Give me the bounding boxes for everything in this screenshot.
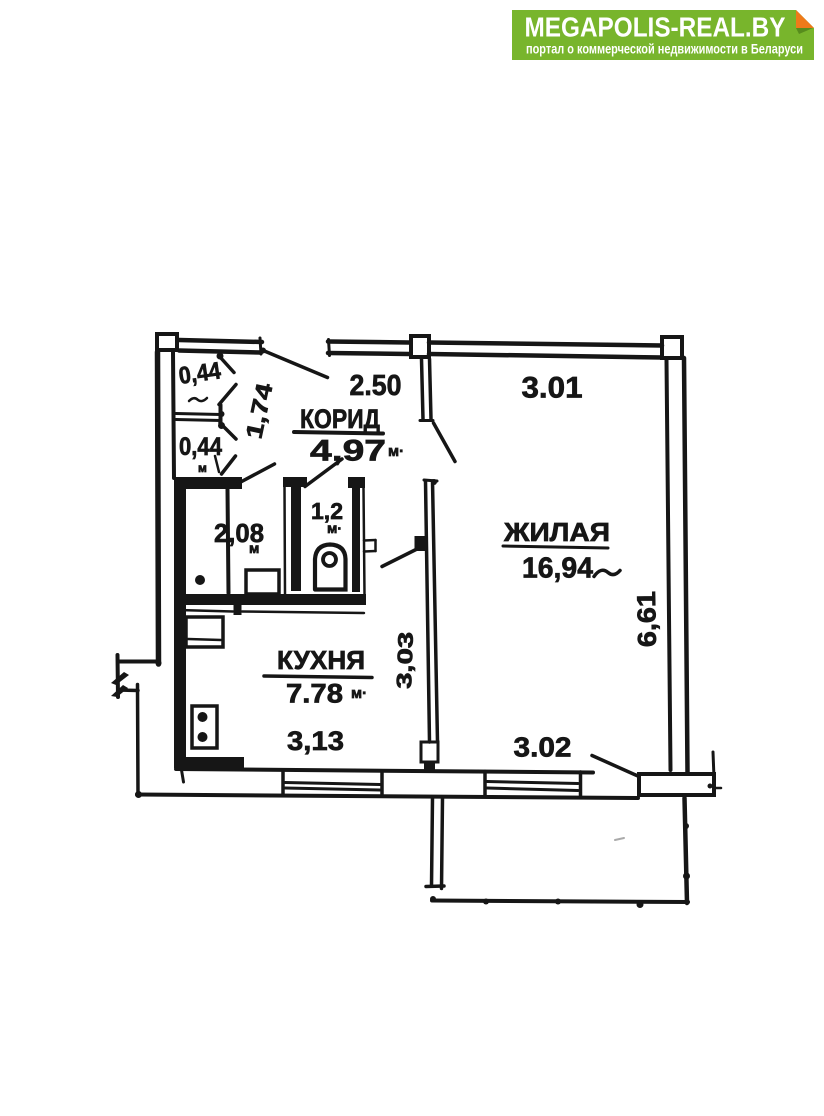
svg-text:7.78: 7.78 xyxy=(286,679,343,709)
svg-text:портал о коммерческой недвижим: портал о коммерческой недвижимости в Бел… xyxy=(526,42,803,57)
svg-text:3.02: 3.02 xyxy=(514,732,572,763)
svg-text:м: м xyxy=(249,540,259,556)
svg-text:0,44: 0,44 xyxy=(179,433,222,461)
svg-text:4,97: 4,97 xyxy=(310,435,386,468)
svg-text:1,74: 1,74 xyxy=(240,381,277,441)
svg-text:3,03: 3,03 xyxy=(393,631,418,689)
svg-text:м·: м· xyxy=(388,443,404,460)
svg-text:3.01: 3.01 xyxy=(522,372,583,405)
svg-text:3,13: 3,13 xyxy=(287,726,344,756)
svg-text:корид: корид xyxy=(300,404,380,434)
svg-text:2.50: 2.50 xyxy=(350,370,402,402)
svg-text:м: м xyxy=(198,461,207,475)
svg-text:MEGAPOLIS-REAL.BY: MEGAPOLIS-REAL.BY xyxy=(525,12,786,43)
svg-text:м·: м· xyxy=(351,685,367,702)
svg-text:м·: м· xyxy=(327,520,342,536)
svg-text:6,61: 6,61 xyxy=(631,591,662,648)
svg-text:кухня: кухня xyxy=(277,645,365,675)
svg-text:0,44: 0,44 xyxy=(177,357,223,390)
svg-text:16,94: 16,94 xyxy=(522,553,593,585)
svg-text:жилая: жилая xyxy=(503,517,610,547)
